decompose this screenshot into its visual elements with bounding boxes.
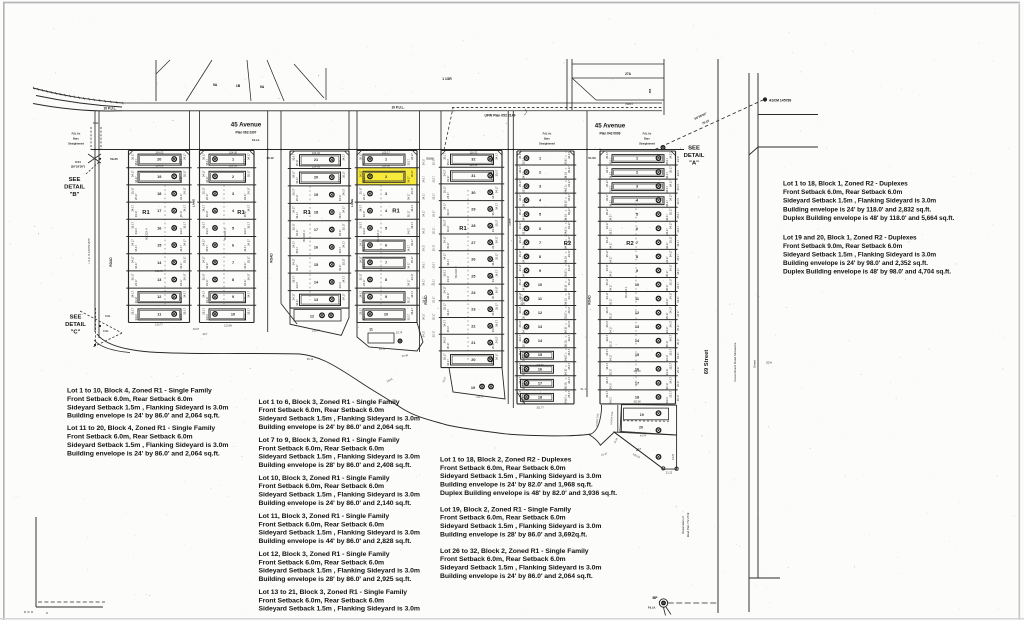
svg-text:34.17: 34.17 [669, 376, 673, 383]
svg-text:15: 15 [635, 353, 639, 357]
svg-text:12: 12 [157, 295, 161, 299]
svg-text:35.17: 35.17 [676, 394, 680, 401]
svg-text:9A: 9A [260, 85, 265, 89]
svg-text:34.17: 34.17 [676, 225, 680, 232]
svg-text:34.17: 34.17 [563, 186, 567, 193]
svg-text:R1: R1 [237, 210, 245, 216]
svg-text:Building envelope is 24' by 98: Building envelope is 24' by 98.0' and 2,… [783, 260, 928, 267]
svg-text:25.17: 25.17 [342, 258, 346, 265]
svg-text:9A: 9A [213, 83, 218, 87]
svg-text:24.17: 24.17 [491, 242, 495, 249]
svg-text:34.17: 34.17 [247, 153, 251, 160]
svg-text:6: 6 [385, 244, 387, 248]
svg-text:15: 15 [157, 244, 161, 248]
svg-text:34.17: 34.17 [605, 166, 609, 173]
svg-text:35.17: 35.17 [446, 325, 450, 332]
svg-text:34.17: 34.17 [362, 227, 366, 234]
svg-text:124.89: 124.89 [155, 164, 163, 168]
svg-text:11: 11 [538, 297, 542, 301]
svg-text:17: 17 [314, 228, 318, 232]
svg-text:35.17: 35.17 [295, 159, 299, 166]
svg-text:34.17: 34.17 [605, 306, 609, 313]
svg-text:34.17: 34.17 [247, 273, 251, 280]
svg-text:34.17: 34.17 [609, 284, 613, 291]
svg-text:34.17: 34.17 [665, 396, 669, 403]
svg-text:3: 3 [385, 192, 387, 196]
svg-text:34.17: 34.17 [522, 270, 526, 277]
svg-text:25.17: 25.17 [432, 261, 436, 268]
svg-text:8: 8 [539, 255, 541, 259]
svg-text:Sideyard Setback 1.5m , Flanki: Sideyard Setback 1.5m , Flanking Sideyar… [440, 523, 601, 530]
svg-text:35.17: 35.17 [665, 340, 669, 347]
svg-text:34.17: 34.17 [205, 176, 209, 183]
svg-text:Lot 26 to 32, Block 2, Zoned R: Lot 26 to 32, Block 2, Zoned R1 - Single… [440, 548, 589, 555]
svg-text:34.17: 34.17 [669, 292, 673, 299]
svg-text:34.17: 34.17 [243, 279, 247, 286]
svg-text:SEE: SEE [70, 315, 82, 321]
svg-text:11: 11 [635, 297, 639, 301]
svg-text:34.17: 34.17 [495, 269, 499, 276]
svg-text:34.17: 34.17 [605, 264, 609, 271]
svg-text:24.17: 24.17 [676, 282, 680, 289]
svg-text:34.17: 34.17 [495, 236, 499, 243]
svg-text:BLOCK 4: BLOCK 4 [145, 228, 149, 240]
svg-text:24.17: 24.17 [247, 187, 251, 194]
svg-text:34.17: 34.17 [422, 330, 426, 337]
svg-text:24.17: 24.17 [518, 348, 522, 355]
svg-text:10 P.U.L.: 10 P.U.L. [391, 106, 404, 110]
svg-text:25.17: 25.17 [563, 157, 567, 164]
svg-text:7: 7 [232, 261, 234, 265]
svg-text:5: 5 [539, 213, 541, 217]
svg-text:35.17: 35.17 [605, 320, 609, 327]
svg-text:24.17: 24.17 [563, 228, 567, 235]
svg-text:34.17: 34.17 [410, 204, 414, 211]
svg-text:25.17: 25.17 [432, 158, 436, 165]
svg-text:34.17: 34.17 [669, 320, 673, 327]
svg-text:34.17: 34.17 [406, 279, 410, 286]
svg-text:25.17: 25.17 [202, 187, 206, 194]
svg-text:34.17: 34.17 [422, 227, 426, 234]
svg-text:110.00: 110.00 [536, 364, 544, 367]
svg-text:BLOCK 2: BLOCK 2 [454, 266, 458, 278]
svg-text:34.17: 34.17 [422, 193, 426, 200]
svg-text:35.17: 35.17 [179, 296, 183, 303]
svg-text:34.17: 34.17 [567, 292, 571, 299]
svg-text:34.17: 34.17 [183, 239, 187, 246]
svg-text:ASCM 145789: ASCM 145789 [769, 99, 791, 103]
svg-text:13: 13 [157, 278, 161, 282]
svg-text:34.17: 34.17 [410, 153, 414, 160]
svg-text:25.17: 25.17 [676, 211, 680, 218]
svg-text:34.17: 34.17 [362, 210, 366, 217]
svg-text:Building envelope is 24' by 86: Building envelope is 24' by 86.0' and 2,… [259, 500, 412, 507]
svg-text:24.17: 24.17 [676, 155, 680, 162]
svg-text:35.17: 35.17 [443, 353, 447, 360]
svg-text:34.17: 34.17 [495, 353, 499, 360]
svg-text:R1: R1 [303, 210, 311, 216]
svg-text:34.17: 34.17 [443, 336, 447, 343]
svg-text:34.17: 34.17 [205, 262, 209, 269]
svg-text:34.17: 34.17 [609, 200, 613, 207]
svg-text:24.17: 24.17 [295, 281, 299, 288]
svg-text:34.17: 34.17 [563, 298, 567, 305]
svg-text:SEE: SEE [688, 146, 700, 152]
svg-text:15: 15 [314, 263, 318, 267]
svg-text:34.17: 34.17 [605, 334, 609, 341]
svg-text:34.17: 34.17 [567, 250, 571, 257]
svg-text:24.17: 24.17 [609, 382, 613, 389]
svg-text:16: 16 [314, 245, 318, 249]
svg-text:Front Setback 6.0m, Rear Setba: Front Setback 6.0m, Rear Setback 6.0m [67, 434, 193, 441]
svg-text:35.17: 35.17 [567, 362, 571, 369]
svg-text:Bars: Bars [73, 137, 79, 141]
svg-text:34.17: 34.17 [342, 206, 346, 213]
svg-text:45.12: 45.12 [307, 358, 314, 361]
svg-text:35.17: 35.17 [406, 210, 410, 217]
svg-text:35.17: 35.17 [669, 166, 673, 173]
svg-text:25.17: 25.17 [131, 187, 135, 194]
svg-text:18: 18 [314, 211, 318, 215]
svg-text:35.17: 35.17 [522, 228, 526, 235]
svg-text:34.17: 34.17 [518, 306, 522, 313]
svg-text:34.17: 34.17 [563, 396, 567, 403]
svg-text:10: 10 [384, 312, 388, 316]
svg-text:104.03: 104.03 [155, 151, 163, 155]
svg-text:35.17: 35.17 [131, 222, 135, 229]
svg-text:24.17: 24.17 [179, 245, 183, 252]
svg-text:LANE: LANE [192, 199, 196, 207]
svg-text:34.17: 34.17 [676, 197, 680, 204]
svg-text:Sideyard Setback 1.5m , Flanki: Sideyard Setback 1.5m , Flanking Sideyar… [783, 198, 936, 205]
svg-text:25.17: 25.17 [432, 330, 436, 337]
svg-text:Sideyard Setback 1.5m , Flanki: Sideyard Setback 1.5m , Flanking Sideyar… [259, 606, 420, 613]
svg-text:34.17: 34.17 [567, 152, 571, 159]
svg-text:34.17: 34.17 [362, 176, 366, 183]
svg-text:Straightened: Straightened [539, 142, 555, 146]
svg-text:Front Setback 9.0m, Rear Setba: Front Setback 9.0m, Rear Setback 6.0m [783, 243, 902, 250]
svg-text:24.17: 24.17 [342, 188, 346, 195]
svg-text:35.17: 35.17 [518, 250, 522, 257]
svg-text:1B: 1B [236, 84, 241, 88]
svg-text:Front Setback 6.0m, Rear Setba: Front Setback 6.0m, Rear Setback 6.0m [259, 559, 385, 566]
svg-text:Sideyard Setback 1.5m , Flanki: Sideyard Setback 1.5m , Flanking Sideyar… [259, 530, 420, 537]
svg-text:34.17: 34.17 [669, 152, 673, 159]
svg-text:ROAD: ROAD [270, 253, 274, 263]
svg-text:25.17: 25.17 [134, 193, 138, 200]
svg-text:34.17: 34.17 [491, 225, 495, 232]
svg-text:34.17: 34.17 [247, 239, 251, 246]
svg-text:34.17: 34.17 [518, 334, 522, 341]
svg-text:35.17: 35.17 [567, 348, 571, 355]
svg-text:34.17: 34.17 [179, 262, 183, 269]
svg-text:34.17: 34.17 [669, 194, 673, 201]
svg-text:34.17: 34.17 [247, 290, 251, 297]
svg-text:10 P.U.L.: 10 P.U.L. [103, 106, 116, 110]
svg-text:13: 13 [314, 298, 318, 302]
svg-text:25.17: 25.17 [522, 340, 526, 347]
svg-text:35.17: 35.17 [522, 312, 526, 319]
svg-text:BLOCK 2: BLOCK 2 [520, 294, 524, 306]
svg-text:25.17: 25.17 [338, 159, 342, 166]
svg-text:34.17: 34.17 [134, 296, 138, 303]
svg-text:124.89: 124.89 [312, 164, 320, 168]
svg-text:25.17: 25.17 [518, 180, 522, 187]
svg-text:34.17: 34.17 [563, 214, 567, 221]
svg-text:34.17: 34.17 [567, 264, 571, 271]
svg-text:35.17: 35.17 [563, 382, 567, 389]
svg-text:DETAIL: DETAIL [65, 322, 86, 328]
svg-text:34.17: 34.17 [422, 313, 426, 320]
svg-text:34.17: 34.17 [446, 292, 450, 299]
svg-text:49.59: 49.59 [640, 434, 647, 437]
svg-text:25.17: 25.17 [131, 308, 135, 315]
svg-text:Front Setback 6.0m, Rear Setba: Front Setback 6.0m, Rear Setback 6.0m [67, 396, 193, 403]
svg-text:25.17: 25.17 [491, 342, 495, 349]
svg-text:Sideyard Setback 1.5m , Flanki: Sideyard Setback 1.5m , Flanking Sideyar… [67, 404, 228, 411]
svg-text:25: 25 [471, 274, 475, 278]
svg-text:Fd.I.As: Fd.I.As [543, 132, 552, 136]
svg-text:18: 18 [538, 395, 542, 399]
svg-text:23: 23 [471, 308, 475, 312]
svg-text:35.17: 35.17 [665, 382, 669, 389]
svg-text:8.54: 8.54 [75, 160, 81, 164]
svg-text:35.17: 35.17 [359, 273, 363, 280]
svg-text:24.17: 24.17 [665, 228, 669, 235]
svg-text:34.17: 34.17 [567, 222, 571, 229]
svg-text:34.17: 34.17 [495, 203, 499, 210]
svg-text:24.17: 24.17 [605, 222, 609, 229]
svg-text:35.17: 35.17 [410, 170, 414, 177]
svg-text:34.17: 34.17 [443, 319, 447, 326]
svg-text:35.17: 35.17 [609, 312, 613, 319]
svg-text:Front Setback 6.0m, Rear Setba: Front Setback 6.0m, Rear Setback 6.0m [259, 445, 385, 452]
svg-text:25.17: 25.17 [179, 159, 183, 166]
svg-text:Lot 13 to 21, Block 3, Zoned R: Lot 13 to 21, Block 3, Zoned R1 - Single… [259, 589, 408, 596]
svg-text:34.17: 34.17 [522, 354, 526, 361]
svg-text:34.17: 34.17 [338, 264, 342, 271]
svg-text:34.17: 34.17 [443, 286, 447, 293]
svg-text:10: 10 [538, 283, 542, 287]
svg-text:34.17: 34.17 [338, 177, 342, 184]
svg-text:Sideyard Setback 1.5m , Flanki: Sideyard Setback 1.5m , Flanking Sideyar… [783, 252, 936, 259]
svg-text:34.17: 34.17 [295, 299, 299, 306]
svg-text:133.70: 133.70 [155, 270, 163, 273]
svg-text:35.17: 35.17 [410, 308, 414, 315]
svg-text:34.17: 34.17 [495, 319, 499, 326]
svg-text:35.17: 35.17 [495, 219, 499, 226]
svg-text:34.17: 34.17 [518, 236, 522, 243]
svg-text:35.17: 35.17 [134, 245, 138, 252]
svg-text:24.17: 24.17 [443, 236, 447, 243]
svg-text:17: 17 [538, 381, 542, 385]
svg-text:35.17: 35.17 [605, 391, 609, 398]
svg-text:7: 7 [539, 241, 541, 245]
svg-text:35.17: 35.17 [605, 152, 609, 159]
svg-text:18: 18 [157, 192, 161, 196]
svg-text:19: 19 [471, 386, 475, 390]
svg-text:34.17: 34.17 [522, 214, 526, 221]
svg-text:34.17: 34.17 [522, 284, 526, 291]
svg-text:7: 7 [385, 261, 387, 265]
svg-text:35.17: 35.17 [669, 278, 673, 285]
svg-text:21: 21 [314, 158, 318, 162]
svg-text:34.17: 34.17 [243, 227, 247, 234]
svg-text:34.17: 34.17 [243, 262, 247, 269]
svg-text:34.17: 34.17 [669, 334, 673, 341]
svg-text:35.17: 35.17 [443, 152, 447, 159]
svg-text:R1: R1 [459, 226, 467, 232]
svg-text:34.17: 34.17 [406, 262, 410, 269]
svg-text:25.17: 25.17 [247, 256, 251, 263]
svg-text:16: 16 [538, 367, 542, 371]
svg-text:35.17: 35.17 [676, 254, 680, 261]
svg-text:34.17: 34.17 [669, 264, 673, 271]
svg-text:34.17: 34.17 [342, 276, 346, 283]
svg-text:34.17: 34.17 [563, 171, 567, 178]
svg-text:Lot 1 to 10, Block 4, Zoned R1: Lot 1 to 10, Block 4, Zoned R1 - Single … [67, 388, 212, 395]
svg-text:34.17: 34.17 [179, 176, 183, 183]
svg-text:104.02: 104.02 [312, 151, 320, 155]
svg-text:33.07: 33.07 [193, 328, 200, 331]
svg-text:Sideyard Setback 1.5m , Flanki: Sideyard Setback 1.5m , Flanking Sideyar… [259, 416, 420, 423]
svg-text:35.17: 35.17 [406, 296, 410, 303]
svg-text:11: 11 [369, 328, 373, 332]
svg-text:20: 20 [314, 176, 318, 180]
svg-text:12: 12 [310, 314, 314, 318]
svg-text:34.17: 34.17 [563, 368, 567, 375]
svg-text:(30°18'36"): (30°18'36") [71, 165, 85, 169]
svg-text:6: 6 [539, 227, 541, 231]
svg-text:35.17: 35.17 [183, 170, 187, 177]
svg-text:24.17: 24.17 [665, 354, 669, 361]
svg-text:25.17: 25.17 [567, 391, 571, 398]
svg-text:19: 19 [640, 413, 644, 417]
svg-text:24.17: 24.17 [669, 306, 673, 313]
svg-text:24.17: 24.17 [567, 180, 571, 187]
svg-text:35.17: 35.17 [205, 245, 209, 252]
svg-text:34.17: 34.17 [446, 208, 450, 215]
svg-text:Street: Street [753, 360, 757, 368]
svg-text:35.17: 35.17 [295, 246, 299, 253]
svg-text:69 Street: 69 Street [704, 350, 710, 375]
svg-text:27A: 27A [625, 72, 632, 76]
svg-text:34.17: 34.17 [422, 279, 426, 286]
svg-text:12: 12 [635, 311, 639, 315]
svg-text:51.17: 51.17 [581, 387, 588, 391]
svg-text:2: 2 [232, 175, 234, 179]
svg-text:1: 1 [385, 158, 387, 162]
svg-text:34.17: 34.17 [669, 250, 673, 257]
svg-text:35.17: 35.17 [609, 228, 613, 235]
svg-text:35.17: 35.17 [359, 222, 363, 229]
svg-text:35.17: 35.17 [247, 308, 251, 315]
svg-text:35.17: 35.17 [342, 171, 346, 178]
svg-text:35.17: 35.17 [410, 222, 414, 229]
svg-text:5: 5 [385, 226, 387, 230]
svg-text:34.17: 34.17 [665, 256, 669, 263]
svg-text:25.17: 25.17 [406, 159, 410, 166]
svg-text:6: 6 [232, 244, 234, 248]
svg-text:34.17: 34.17 [205, 227, 209, 234]
svg-text:R1: R1 [392, 209, 400, 215]
svg-text:34.17: 34.17 [676, 268, 680, 275]
svg-text:34.17: 34.17 [446, 225, 450, 232]
svg-text:35.17: 35.17 [676, 183, 680, 190]
svg-text:35.17: 35.17 [292, 153, 296, 160]
svg-text:34.17: 34.17 [495, 286, 499, 293]
svg-text:34.17: 34.17 [422, 175, 426, 182]
svg-text:35.17: 35.17 [495, 169, 499, 176]
svg-text:25.17: 25.17 [432, 210, 436, 217]
svg-text:34.17: 34.17 [202, 256, 206, 263]
svg-text:34.17: 34.17 [446, 175, 450, 182]
svg-text:34.17: 34.17 [676, 240, 680, 247]
svg-text:UFW Plan 052 2149: UFW Plan 052 2149 [485, 114, 516, 118]
svg-text:Sideyard Setback 1.5m , Flanki: Sideyard Setback 1.5m , Flanking Sideyar… [259, 568, 420, 575]
svg-text:25.17: 25.17 [432, 244, 436, 251]
svg-text:24.17: 24.17 [446, 275, 450, 282]
svg-text:R1: R1 [142, 210, 150, 216]
svg-text:74.5 t: 74.5 t [625, 102, 632, 106]
svg-text:EW: EW [648, 89, 652, 94]
svg-text:34.17: 34.17 [605, 376, 609, 383]
svg-text:Fd.I.A.: Fd.I.A. [252, 138, 260, 142]
svg-text:Duplex Building envelope is 48: Duplex Building envelope is 48' by 118.0… [783, 215, 954, 222]
svg-text:Lot 10, Block 3, Zoned R1 - Si: Lot 10, Block 3, Zoned R1 - Single Famil… [259, 475, 390, 482]
svg-text:Lot 1 to 6, Block 3, Zoned R1: Lot 1 to 6, Block 3, Zoned R1 - Single F… [259, 399, 400, 406]
svg-text:34.17: 34.17 [406, 176, 410, 183]
svg-text:SEE: SEE [69, 177, 81, 183]
svg-text:25.17: 25.17 [295, 194, 299, 201]
svg-text:34.17: 34.17 [131, 290, 135, 297]
svg-text:17: 17 [635, 381, 639, 385]
svg-text:34.17: 34.17 [359, 170, 363, 177]
svg-text:25.17: 25.17 [243, 159, 247, 166]
svg-text:34.17: 34.17 [609, 242, 613, 249]
svg-text:34.17: 34.17 [609, 326, 613, 333]
svg-text:35.17: 35.17 [362, 159, 366, 166]
svg-text:34.17: 34.17 [422, 261, 426, 268]
svg-text:24.17: 24.17 [563, 354, 567, 361]
svg-text:35.17: 35.17 [495, 303, 499, 310]
svg-text:34.17: 34.17 [443, 253, 447, 260]
svg-text:34.17: 34.17 [295, 211, 299, 218]
svg-text:24.17: 24.17 [243, 245, 247, 252]
svg-text:29: 29 [471, 207, 475, 211]
svg-text:24.17: 24.17 [359, 239, 363, 246]
svg-text:"C": "C" [71, 330, 81, 336]
svg-text:Fd.I.: Fd.I. [105, 315, 110, 318]
svg-text:35.17: 35.17 [179, 313, 183, 320]
svg-text:35.17: 35.17 [446, 342, 450, 349]
svg-text:34.17: 34.17 [422, 210, 426, 217]
svg-text:10: 10 [635, 283, 639, 287]
svg-text:Building envelope is 24' by 86: Building envelope is 24' by 86.0' and 2,… [259, 424, 412, 431]
svg-text:34.17: 34.17 [362, 296, 366, 303]
svg-text:34.17: 34.17 [522, 171, 526, 178]
svg-text:35.17: 35.17 [669, 362, 673, 369]
svg-text:34.17: 34.17 [202, 290, 206, 297]
svg-text:9: 9 [385, 295, 387, 299]
svg-text:34.17: 34.17 [338, 229, 342, 236]
svg-text:23.74: 23.74 [396, 332, 403, 335]
svg-text:Building envelope is 24' by 86: Building envelope is 24' by 86.0' and 2,… [67, 450, 220, 457]
svg-text:Front Setback 6.0m, Rear Setba: Front Setback 6.0m, Rear Setback 6.0m [783, 189, 902, 196]
svg-text:34.17: 34.17 [665, 171, 669, 178]
svg-text:34.17: 34.17 [292, 258, 296, 265]
svg-text:123.00: 123.00 [382, 164, 390, 168]
